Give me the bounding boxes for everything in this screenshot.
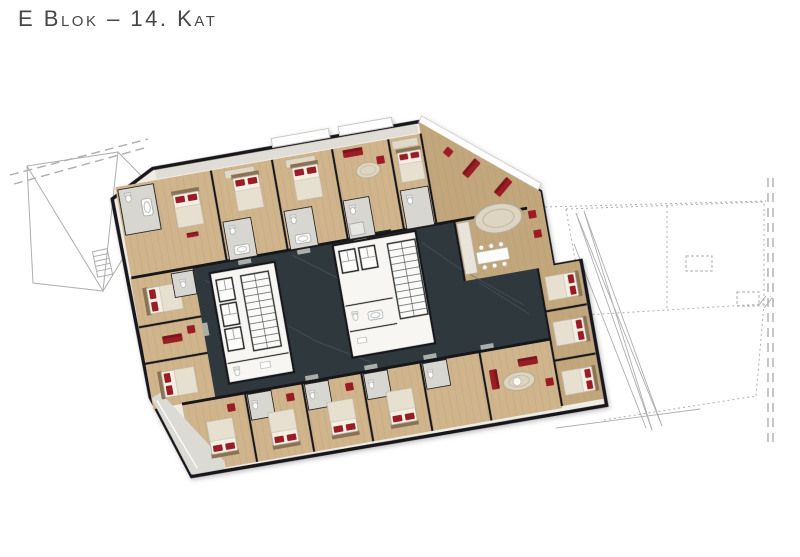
floor-plan-page: E Blok – 14. Kat: [0, 0, 800, 557]
armchair-icon: [186, 325, 195, 334]
elevator-icon: [339, 249, 359, 273]
armchair-icon: [545, 377, 554, 386]
armchair-icon: [227, 403, 236, 412]
armchair-icon: [533, 229, 542, 238]
column-outline-icon: [737, 292, 759, 306]
armchair-icon: [376, 155, 385, 164]
building-floor-plan: [107, 89, 607, 483]
elevator-icon: [220, 302, 240, 326]
elevator-icon: [359, 245, 379, 269]
armchair-icon: [528, 210, 537, 219]
elevator-icon: [225, 327, 245, 351]
elevator-icon: [216, 277, 236, 301]
armchair-icon: [286, 392, 295, 401]
floor-plan-graphic: [0, 0, 800, 557]
shower-icon: [349, 222, 365, 236]
armchair-icon: [345, 382, 354, 391]
sink-icon: [260, 361, 271, 369]
stairs-outline-icon: [92, 249, 112, 278]
column-outline-icon: [686, 256, 712, 271]
